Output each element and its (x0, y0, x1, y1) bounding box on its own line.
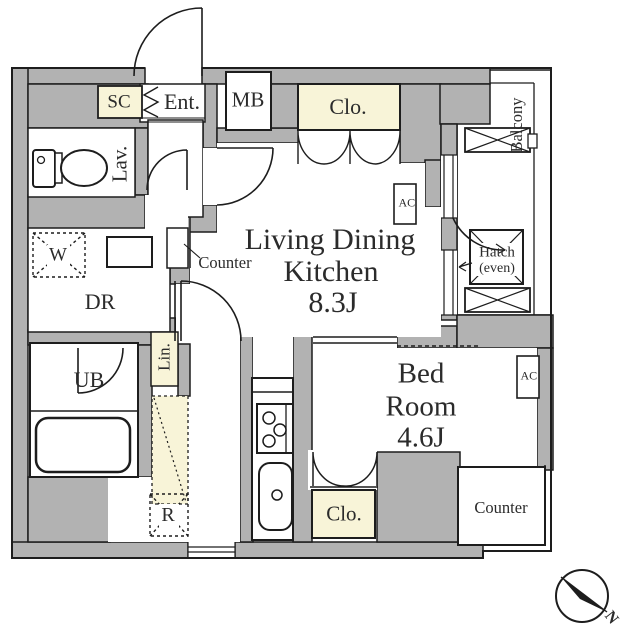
label-shoe-closet: SC (107, 93, 130, 112)
label-entrance: Ent. (164, 91, 200, 113)
ldk-floor (253, 337, 293, 378)
tall-storage (152, 396, 188, 504)
compass-icon (556, 570, 608, 622)
sink-icon (259, 463, 292, 530)
counter-niche (167, 228, 188, 268)
wall (28, 477, 110, 542)
wall (235, 542, 483, 558)
label-hatch-line1: Hatch (479, 246, 515, 261)
wall (12, 68, 28, 558)
label-closet-top: Clo. (329, 96, 366, 118)
label-washer: W (49, 246, 67, 265)
ldk-floor (425, 207, 441, 337)
label-ldk-line1: Living Dining (245, 225, 416, 255)
vanity (107, 237, 152, 267)
label-unit-bath: UB (74, 369, 105, 391)
nook (108, 477, 152, 542)
label-ac-ldk: AC (399, 196, 412, 211)
wall (440, 84, 490, 124)
stove-icon (257, 404, 293, 453)
label-counter-ldk: Counter (198, 255, 251, 272)
label-closet-bedroom: Clo. (326, 504, 362, 525)
wall (425, 160, 441, 207)
passage (145, 195, 188, 232)
label-ldk-size: 8.3J (308, 288, 357, 318)
toilet-icon (33, 150, 107, 187)
ldk-floor (190, 268, 217, 337)
label-dressing-room: DR (85, 291, 116, 313)
wall (12, 542, 188, 558)
ldk-floor (176, 284, 190, 337)
wall (271, 84, 298, 128)
entrance-door-arc (134, 8, 202, 76)
label-lavatory: Lav. (110, 146, 131, 183)
wall (138, 345, 152, 477)
wall (400, 84, 441, 163)
label-bedroom-line1: Bed (398, 360, 445, 389)
label-fridge: R (161, 505, 174, 525)
bathtub-icon (36, 418, 130, 472)
wall (135, 128, 148, 195)
wall (178, 344, 190, 396)
label-meter-box: MB (232, 90, 265, 111)
wall (12, 68, 145, 84)
floor-plan-drawing (0, 0, 640, 640)
corridor (188, 337, 240, 542)
crossed-box-tab (528, 134, 537, 148)
wall (377, 452, 460, 542)
wall (457, 315, 553, 348)
label-linen: Lin. (156, 343, 173, 371)
label-hatch-line2: (even) (479, 262, 515, 276)
label-bedroom-size: 4.6J (397, 424, 445, 453)
floor-plan: SC Ent. MB Clo. Balcony Lav. W DR Counte… (0, 0, 640, 640)
label-ac-bedroom: AC (521, 369, 534, 384)
label-balcony: Balcony (509, 98, 526, 153)
label-ldk-line2: Kitchen (284, 257, 379, 287)
wall (28, 195, 145, 230)
doorway (203, 148, 217, 205)
label-counter-bedroom: Counter (474, 500, 527, 517)
label-bedroom-line2: Room (386, 393, 457, 422)
